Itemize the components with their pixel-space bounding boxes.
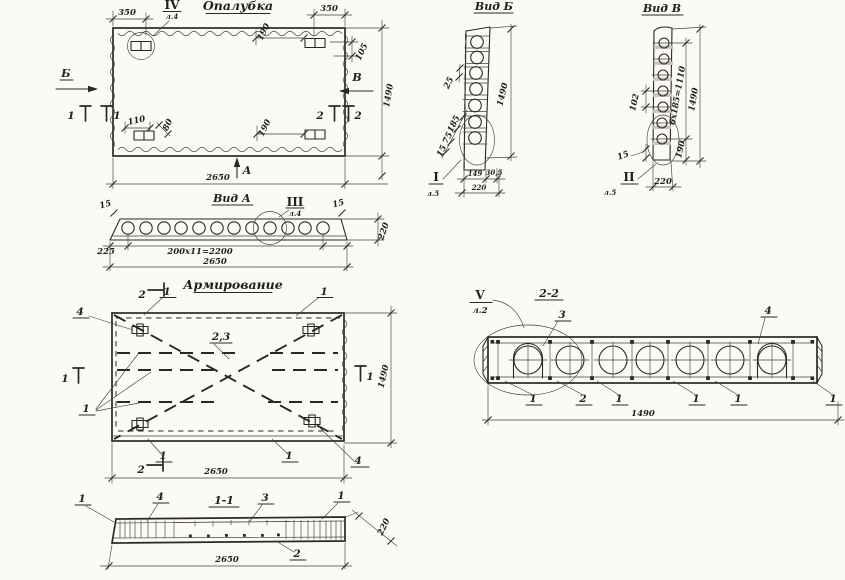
reinforcement-title: Армирование	[182, 277, 282, 292]
pos-1-label: 1	[163, 286, 170, 298]
formwork-title: Опалубка	[203, 0, 273, 13]
detail-ii-label: II	[623, 170, 635, 184]
dim-spacing: 200х11=2200	[166, 247, 233, 257]
detail-i-label: I	[433, 170, 439, 184]
view-b-letter: Б	[60, 67, 71, 80]
detail-iii-label: III	[287, 195, 304, 209]
detail-v-label: V	[474, 288, 485, 302]
view-b-arrow	[88, 86, 98, 92]
pos-1-label: 1	[285, 450, 292, 462]
section-2-2-title: 2-2	[538, 287, 559, 300]
pos-4-label: 4	[764, 305, 771, 317]
embed-plate	[134, 131, 154, 140]
embed-plate	[305, 130, 325, 139]
cut-1-mark: 1	[61, 373, 68, 385]
detail-iv-sheet: л.4	[166, 12, 179, 21]
pos-2-label: 2	[292, 548, 300, 560]
dim-1490: 1490	[377, 364, 392, 389]
dim-1490: 1490	[631, 409, 655, 419]
view-v-letter: В	[351, 71, 361, 84]
dim-2650: 2650	[202, 257, 227, 267]
dim-15: 15	[616, 149, 631, 162]
vid-v-view: Вид В 102 15 6х185=1110 190 1490 220 II …	[604, 2, 706, 197]
pos-1-label: 1	[78, 493, 85, 505]
cut-2-mark: 2	[136, 464, 144, 476]
detail-iii-sheet: л.4	[289, 209, 302, 218]
vid-a-title: Вид А	[212, 192, 251, 205]
engineering-drawing: Опалубка IV л.4 350 350 190 105 110 80	[0, 0, 845, 580]
pos-4-label: 4	[76, 306, 83, 318]
vid-v-title: Вид В	[642, 2, 681, 15]
vid-a-view: Вид А III л.4 15 15 220 225 200х11=2200 …	[96, 192, 392, 271]
detail-iv-label: IV	[165, 0, 181, 12]
dim-1490: 1490	[496, 82, 511, 107]
cut-2-mark: 2	[137, 289, 145, 301]
section-1-1-view: 1-1 1 4 3 1 2 2650 220	[75, 490, 397, 570]
vid-b-title: Вид Б	[474, 0, 514, 13]
dim-15-right: 15	[331, 198, 345, 211]
dim-190-bottom: 190	[257, 118, 274, 138]
dim-15: 15	[435, 144, 449, 159]
dim-220: 220	[376, 221, 392, 242]
embed-plate	[131, 42, 151, 51]
cut-1-mark: 1	[67, 110, 74, 122]
dim-220: 220	[653, 177, 672, 187]
dim-220: 220	[375, 517, 392, 538]
dim-350-right: 350	[320, 4, 338, 14]
dim-30-5: 30,5	[485, 168, 502, 177]
detail-v-sheet: л.2	[472, 306, 487, 316]
reinforcement-view: Армирование 2 2 1 1 1 1 4 2,3 1 1 1 4	[61, 277, 397, 483]
dim-220: 220	[471, 183, 487, 192]
drawing-sheet: Опалубка IV л.4 350 350 190 105 110 80	[0, 0, 845, 580]
dim-102: 102	[628, 93, 642, 113]
embed-plate	[303, 324, 319, 336]
cut-2-mark: 2	[353, 110, 361, 122]
dim-1490: 1490	[382, 83, 396, 108]
cut-1-mark: 1	[113, 110, 120, 122]
dim-15-left: 15	[98, 199, 112, 212]
vid-b-view: Вид Б 25 185 75 15 1490 149 30,5 220 I л…	[427, 0, 517, 198]
dim-110: 110	[127, 114, 147, 127]
dim-25: 25	[442, 76, 457, 92]
cut-2-mark: 2	[315, 110, 323, 122]
view-a-letter: А	[242, 164, 252, 177]
view-a-arrow	[234, 157, 240, 167]
pos-4-label: 4	[354, 455, 361, 467]
pos-2-3-label: 2,3	[211, 331, 230, 343]
dim-149: 149	[468, 169, 483, 178]
pos-4-label: 4	[156, 491, 163, 503]
dim-2650: 2650	[205, 173, 230, 183]
pos-1-label: 1	[337, 490, 344, 502]
dim-185: 185	[446, 114, 463, 134]
dim-190-top: 190	[256, 22, 273, 42]
pos-1-label: 1	[320, 286, 327, 298]
dim-225: 225	[96, 247, 115, 257]
pos-3-label: 3	[261, 492, 268, 504]
detail-i-sheet: л.5	[427, 189, 440, 198]
cut-1-mark: 1	[366, 371, 373, 383]
dim-105: 105	[354, 42, 371, 62]
section-1-1-title: 1-1	[214, 494, 234, 507]
formwork-view: Опалубка IV л.4 350 350 190 105 110 80	[56, 0, 396, 189]
detail-ii-sheet: л.5	[604, 188, 617, 197]
dim-2650: 2650	[214, 555, 239, 565]
dim-1490: 1490	[687, 87, 701, 112]
dim-350-left: 350	[118, 8, 136, 18]
embed-plate	[305, 39, 325, 48]
dim-2650: 2650	[203, 467, 228, 477]
pos-3-label: 3	[558, 309, 565, 321]
pos-1-label: 1	[82, 403, 89, 415]
section-2-2-view: 2-2 V л.2 3 4 1 2 1 1 1 1 1490	[470, 287, 844, 425]
dim-80: 80	[161, 118, 175, 133]
